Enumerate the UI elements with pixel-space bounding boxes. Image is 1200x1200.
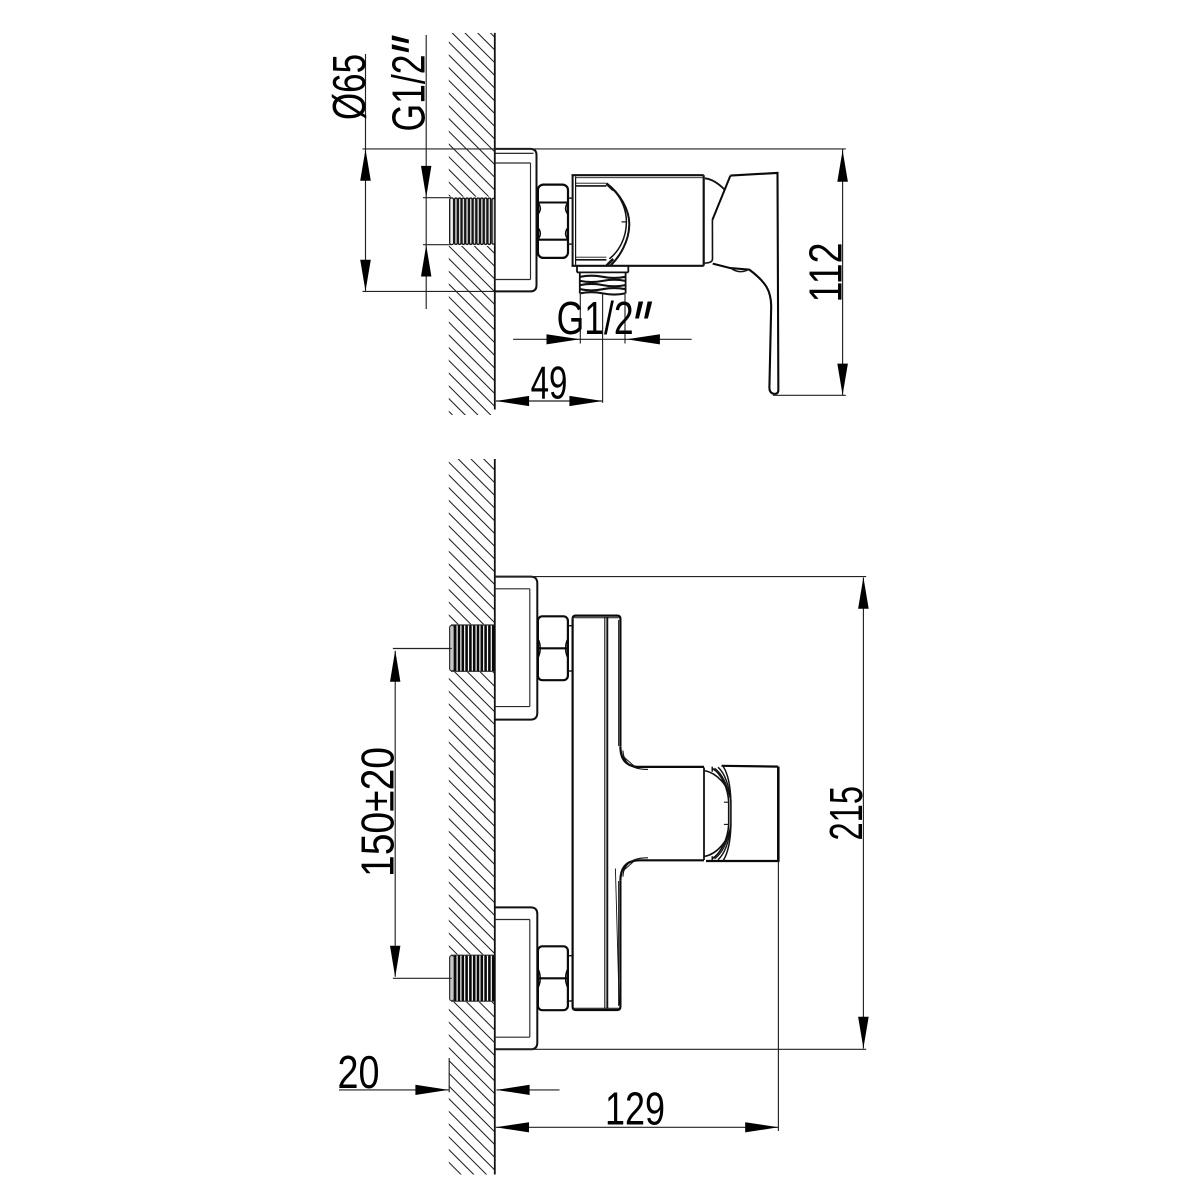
svg-text:49: 49: [531, 357, 568, 409]
svg-text:112: 112: [800, 243, 852, 303]
svg-text:G1/2: G1/2: [382, 55, 434, 132]
svg-text:215: 215: [820, 786, 872, 841]
svg-text:Ø65: Ø65: [323, 54, 375, 120]
svg-text:150±20: 150±20: [351, 747, 403, 877]
svg-text:129: 129: [605, 1083, 665, 1135]
svg-text:G1/2: G1/2: [557, 292, 634, 344]
svg-text:20: 20: [338, 1046, 380, 1098]
